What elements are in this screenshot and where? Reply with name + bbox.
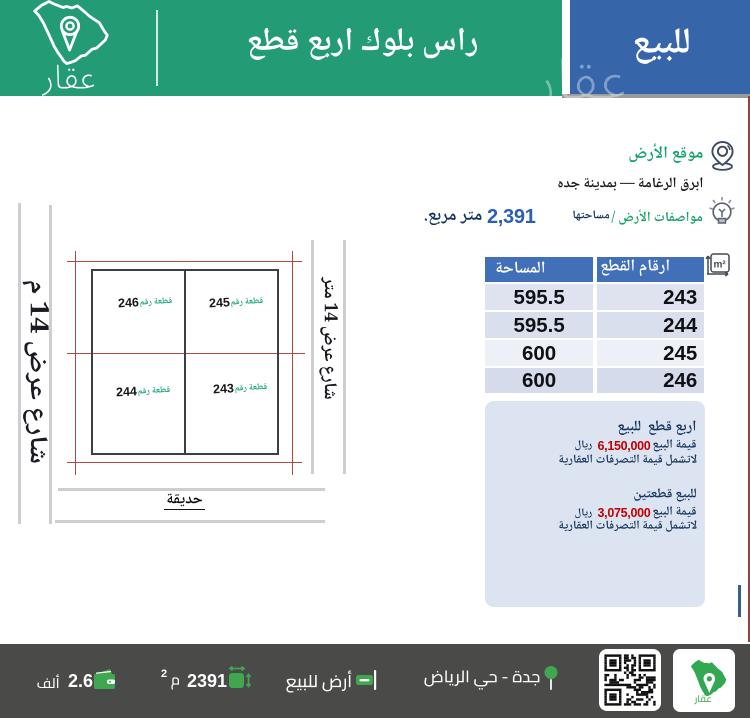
svg-text:m²: m² bbox=[714, 260, 727, 271]
